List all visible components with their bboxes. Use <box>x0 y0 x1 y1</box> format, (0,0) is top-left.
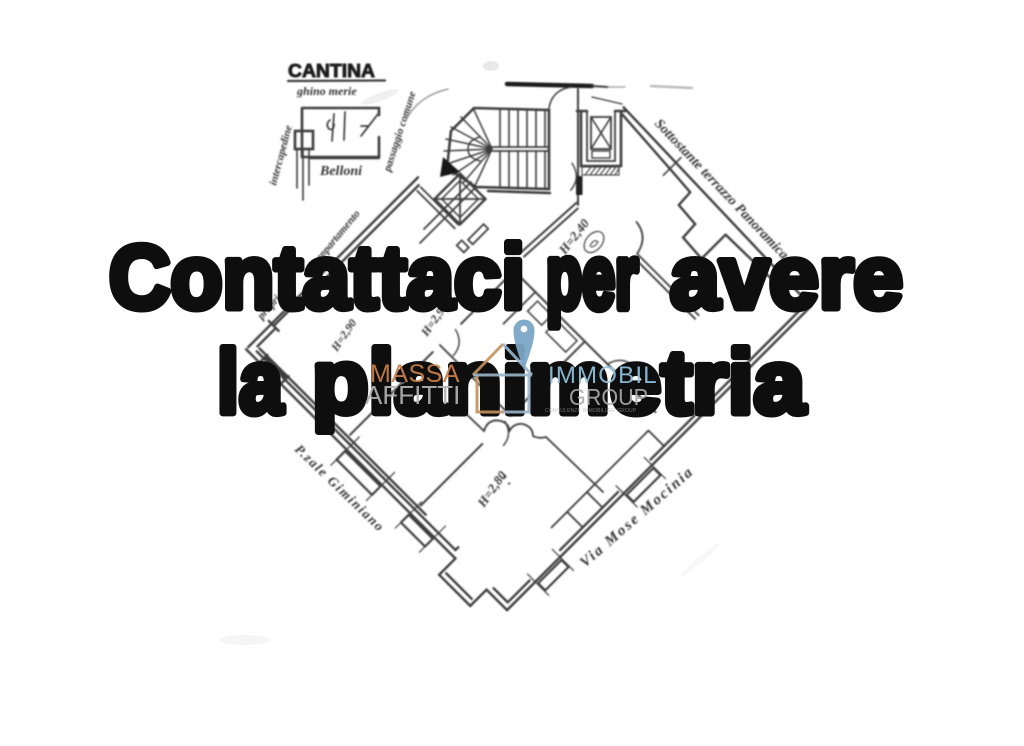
svg-text:H=2,80: H=2,80 <box>474 468 510 511</box>
svg-text:passaggio comune: passaggio comune <box>381 90 419 174</box>
svg-text:la: la <box>217 333 284 433</box>
svg-text:CONSULENZE IMMOBILIARI GROUP: CONSULENZE IMMOBILIARI GROUP <box>545 408 637 414</box>
svg-text:per: per <box>546 228 638 328</box>
svg-text:Belloni: Belloni <box>319 164 362 179</box>
svg-text:avere: avere <box>670 228 903 328</box>
svg-text:CANTINA: CANTINA <box>288 61 375 81</box>
svg-text:AFFITTI: AFFITTI <box>365 380 460 410</box>
svg-text:Contattaci: Contattaci <box>109 228 525 328</box>
svg-text:intercapedine: intercapedine <box>267 124 295 187</box>
svg-text:ghino merie: ghino merie <box>296 84 357 98</box>
svg-text:GROUP: GROUP <box>569 384 648 410</box>
